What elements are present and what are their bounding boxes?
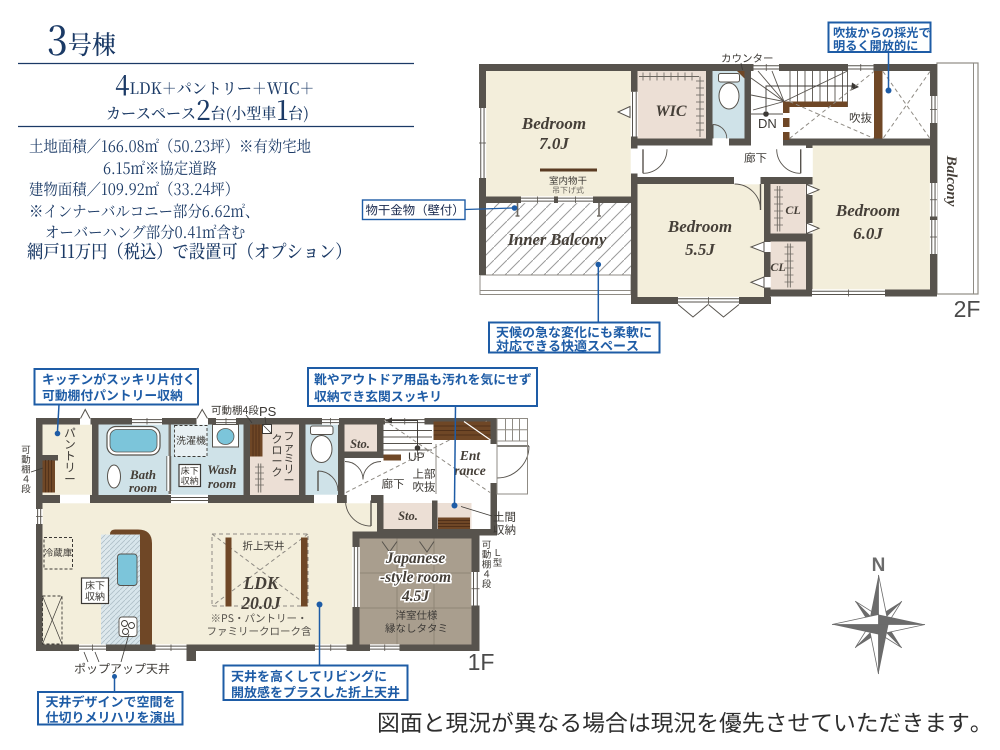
svg-text:20.0J: 20.0J (240, 593, 282, 613)
svg-text:5.5J: 5.5J (685, 240, 715, 259)
svg-text:Bedroom: Bedroom (835, 201, 900, 220)
svg-text:Sto.: Sto. (398, 509, 418, 523)
svg-text:2F: 2F (954, 296, 981, 322)
svg-text:Japanese: Japanese (385, 550, 446, 567)
svg-text:7.0J: 7.0J (539, 134, 569, 153)
svg-text:Bedroom: Bedroom (667, 217, 732, 236)
svg-text:WIC: WIC (655, 103, 686, 120)
svg-text:Inner Balcony: Inner Balcony (507, 230, 607, 249)
svg-text:6.0J: 6.0J (853, 224, 883, 243)
svg-text:room: room (129, 480, 157, 495)
svg-text:Wash: Wash (207, 462, 236, 477)
svg-text:1F: 1F (468, 649, 495, 675)
svg-text:N: N (872, 555, 886, 576)
svg-text:LDK: LDK (243, 573, 280, 593)
svg-text:CL: CL (785, 203, 800, 217)
svg-text:PS: PS (259, 404, 277, 419)
svg-text:-style room: -style room (380, 569, 451, 586)
svg-text:Sto.: Sto. (350, 437, 370, 451)
svg-text:4.5J: 4.5J (401, 588, 430, 605)
svg-text:Ent: Ent (459, 448, 482, 463)
svg-text:rance: rance (454, 463, 486, 478)
svg-text:room: room (208, 476, 236, 491)
svg-text:CL: CL (770, 260, 785, 274)
svg-text:Bedroom: Bedroom (521, 114, 586, 133)
svg-text:Balcony: Balcony (943, 155, 959, 207)
svg-text:DN: DN (758, 116, 777, 131)
